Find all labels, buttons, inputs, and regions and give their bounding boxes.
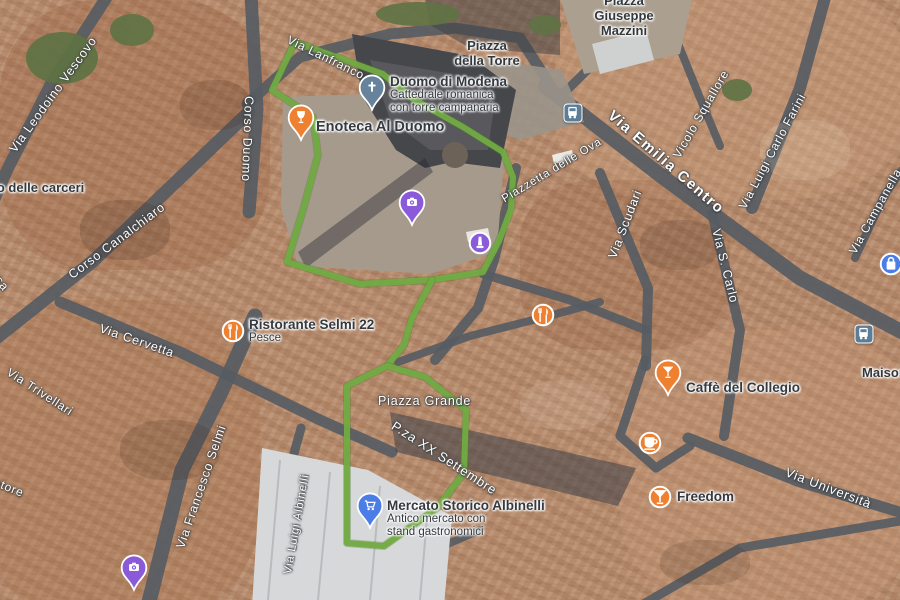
camera-icon[interactable] <box>121 555 148 592</box>
camera-icon[interactable] <box>399 190 426 227</box>
pois-layer: Duomo di ModenaCattedrale romanicacon to… <box>0 0 900 600</box>
poi-subtitle: con torre campanaria <box>390 102 507 115</box>
poi-subtitle: Cattedrale romanica <box>390 89 507 102</box>
poi-subtitle: Antico mercato con <box>387 513 545 526</box>
poi-label-enoteca-al-duomo[interactable]: Enoteca Al Duomo <box>316 120 444 135</box>
coffee-icon[interactable] <box>639 432 662 455</box>
poi-subtitle: stand gastronomici <box>387 526 545 539</box>
poi-title: Enoteca Al Duomo <box>316 120 444 135</box>
restaurant-icon[interactable] <box>222 320 245 343</box>
bag-icon[interactable] <box>880 253 900 276</box>
cocktail-icon[interactable] <box>655 360 682 397</box>
poi-title: Caffè del Collegio <box>686 380 800 395</box>
cart-icon[interactable] <box>357 493 384 530</box>
poi-label-ristorante-selmi-22[interactable]: Ristorante Selmi 22Pesce <box>249 317 374 345</box>
map-canvas[interactable]: Via LanfrancoVia Leodoino VescovoCorso D… <box>0 0 900 600</box>
poi-title: Freedom <box>677 489 734 504</box>
poi-title: Ristorante Selmi 22 <box>249 317 374 332</box>
restaurant-icon[interactable] <box>532 304 555 327</box>
poi-title: Mercato Storico Albinelli <box>387 498 545 513</box>
poi-label-mercato-storico-albinelli[interactable]: Mercato Storico AlbinelliAntico mercato … <box>387 498 545 538</box>
poi-label-caffe-del-collegio[interactable]: Caffè del Collegio <box>686 380 800 395</box>
church-icon[interactable] <box>359 75 386 112</box>
poi-subtitle: Pesce <box>249 332 374 345</box>
poi-label-duomo-di-modena[interactable]: Duomo di ModenaCattedrale romanicacon to… <box>390 74 507 114</box>
monument-icon[interactable] <box>469 232 492 255</box>
poi-label-freedom[interactable]: Freedom <box>677 489 734 504</box>
poi-title: Duomo di Modena <box>390 74 507 89</box>
wine-icon[interactable] <box>288 105 315 142</box>
cocktail-icon[interactable] <box>649 486 672 509</box>
